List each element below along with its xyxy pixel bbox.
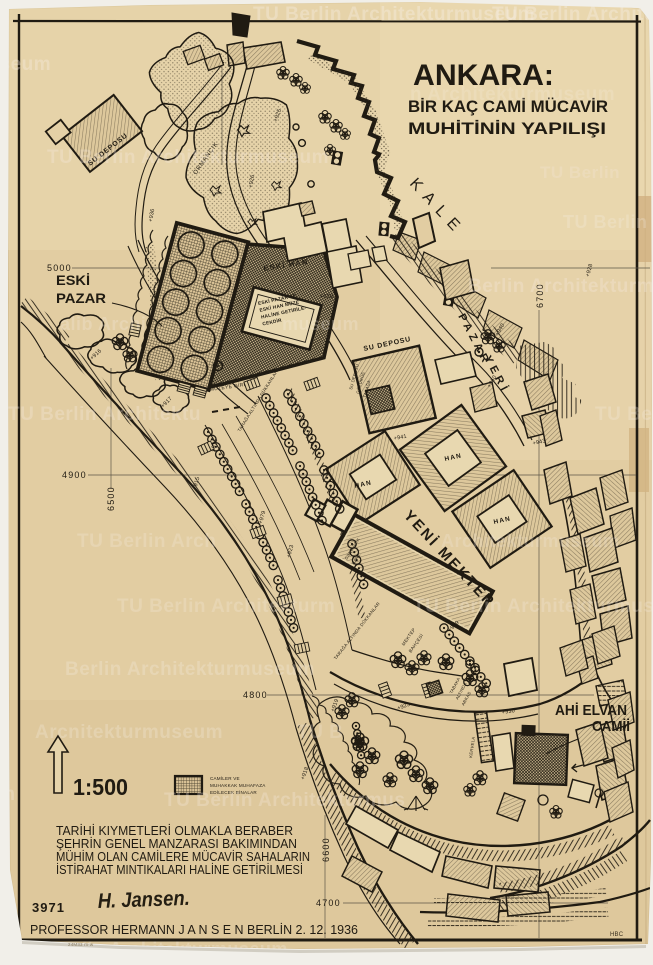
svg-text:ESKİ: ESKİ (56, 272, 90, 288)
svg-text:MÜHİM OLAN CAMİLERE MÜCAVİR: MÜHİM OLAN CAMİLERE MÜCAVİR SAHALARIN (56, 850, 310, 864)
svg-text:TU B: TU B (297, 722, 343, 743)
svg-text:TU Berlin Architektu: TU Berlin Architektu (8, 404, 201, 425)
svg-text:TU Berlin: TU Berlin (540, 163, 620, 182)
svg-text:CAMİİ: CAMİİ (592, 718, 630, 735)
svg-text:PAZAR: PAZAR (56, 290, 106, 306)
svg-text:1:500: 1:500 (73, 774, 128, 800)
svg-text:H. Jansen.: H. Jansen. (97, 887, 190, 913)
svg-text:6500: 6500 (106, 486, 116, 511)
svg-text:museum: museum (282, 314, 359, 334)
svg-text:TU Berlin Architekturm: TU Berlin Architekturm (117, 596, 335, 617)
svg-text:4700: 4700 (316, 898, 341, 908)
svg-text:İSTİRAHAT MINTIKALARI HALİNE: İSTİRAHAT MINTIKALARI HALİNE GETİRİLMESİ (56, 863, 303, 877)
svg-text:6600: 6600 (321, 837, 331, 862)
svg-text:alib Archi: alib Archi (60, 314, 146, 334)
svg-text:ŞEHRİN GENEL MANZARASI BAKI: ŞEHRİN GENEL MANZARASI BAKIMINDAN (56, 837, 297, 851)
svg-text:TU Berlin Architekturmuseum: TU Berlin Architekturmuseum (47, 147, 329, 168)
svg-text:Arcnitekturmuseum: Arcnitekturmuseum (35, 722, 223, 743)
svg-text:MUHİTİNİN YAPILIŞI: MUHİTİNİN YAPILIŞI (408, 119, 606, 138)
svg-text:24M33 m-w: 24M33 m-w (68, 942, 94, 947)
svg-text:3971: 3971 (32, 900, 65, 915)
svg-text:Architekturmuseum: Architekturmuseum (441, 531, 620, 551)
svg-text:Berlin Architekturmuseum: Berlin Architekturmuseum (468, 276, 653, 297)
svg-text:Berlin Architekturmuseum: Berlin Architekturmuseum (65, 659, 315, 680)
svg-text:PROFESSOR HERMANN J A N S E: PROFESSOR HERMANN J A N S E N BERLİN 2. … (30, 922, 358, 937)
svg-text:+938: +938 (320, 294, 333, 300)
svg-text:TU Ber: TU Ber (595, 404, 653, 425)
svg-text:4900: 4900 (62, 470, 87, 480)
svg-text:TU Berlin Arch: TU Berlin Arch (77, 531, 216, 552)
svg-text:TU Berlin Architekturmuseum: TU Berlin Architekturmuseum (413, 596, 653, 617)
svg-text:HBC: HBC (610, 932, 624, 938)
svg-text:TU Berlin Arch: TU Berlin Arch (563, 212, 653, 232)
svg-text:MUHAKKAK MUHAFAZA: MUHAKKAK MUHAFAZA (210, 783, 266, 788)
svg-text:n Architekturmuseum: n Architekturmuseum (410, 84, 615, 105)
svg-text:TARİHİ KIYMETLERİ OLMAKLA B: TARİHİ KIYMETLERİ OLMAKLA BERABER (56, 824, 293, 838)
svg-text:TU Berlin Architekturmus: TU Berlin Architekturmus (164, 790, 405, 811)
svg-text:CAMİLER VE: CAMİLER VE (210, 775, 240, 781)
svg-text:4800: 4800 (243, 690, 268, 700)
svg-text:AHİ ELVAN: AHİ ELVAN (555, 702, 627, 719)
